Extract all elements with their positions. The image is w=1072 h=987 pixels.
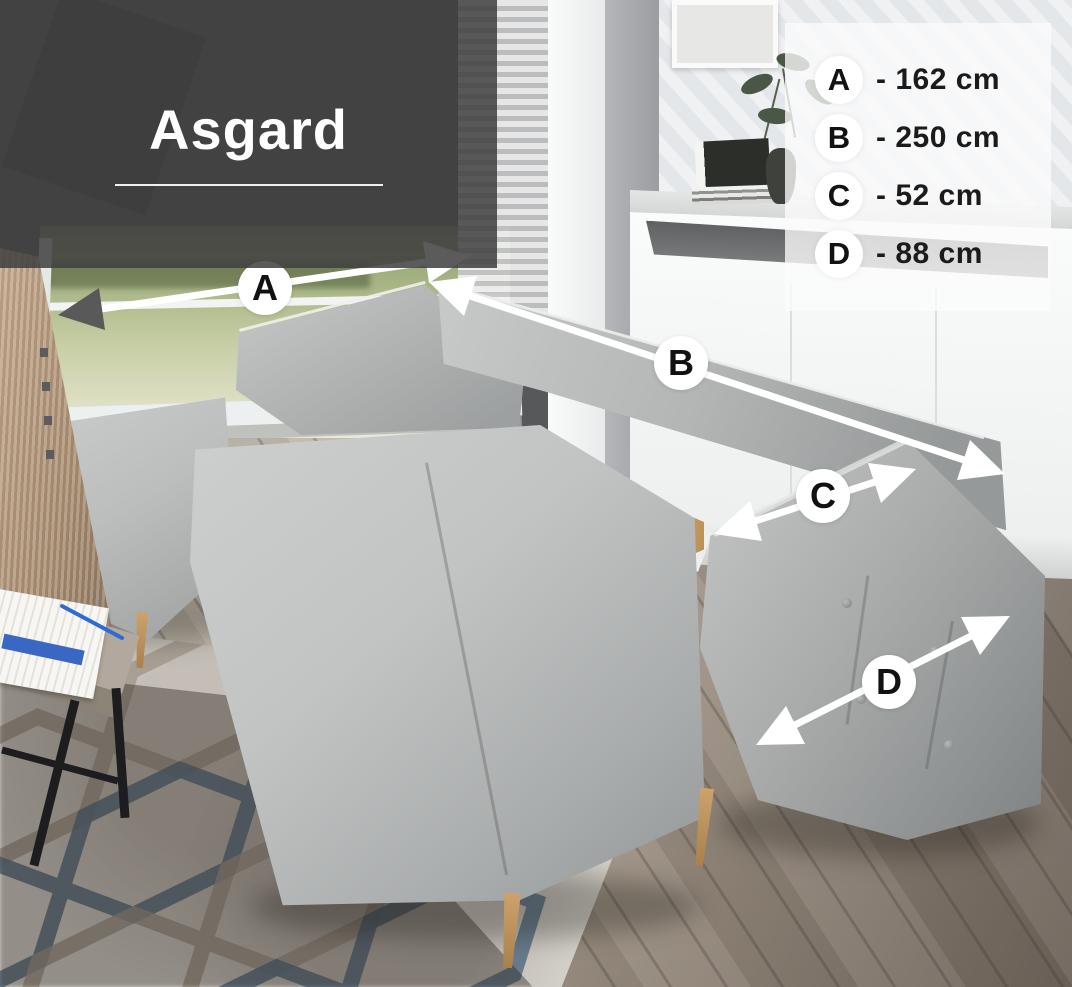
marker-a-label: A: [252, 267, 278, 309]
legend-letter-badge: B: [815, 114, 863, 162]
marker-c-label: C: [810, 475, 836, 517]
legend-row: C - 52 cm: [815, 172, 1051, 220]
tuft-button: [842, 598, 852, 608]
marker-a: A: [238, 261, 292, 315]
legend-row: D - 88 cm: [815, 230, 1051, 278]
legend-card: A - 162 cm B - 250 cm C - 52 cm D - 88 c…: [785, 23, 1051, 311]
title-card: Asgard: [0, 0, 497, 268]
tuft-button: [930, 646, 940, 656]
curtain-hook: [40, 348, 48, 357]
legend-value: - 250 cm: [876, 121, 1000, 155]
marker-d-label: D: [876, 661, 902, 703]
legend-value: - 52 cm: [876, 179, 983, 213]
tuft-button: [856, 694, 866, 704]
legend-row: B - 250 cm: [815, 114, 1051, 162]
tuft-button: [944, 740, 954, 750]
marker-d: D: [862, 655, 916, 709]
legend-letter-badge: C: [815, 172, 863, 220]
stacked-books: [692, 185, 779, 206]
legend-row: A - 162 cm: [815, 56, 1051, 104]
marker-b: B: [654, 336, 708, 390]
legend-value: - 88 cm: [876, 237, 983, 271]
marker-c: C: [796, 469, 850, 523]
curtain-hook: [46, 450, 54, 459]
page-title: Asgard: [149, 97, 348, 162]
legend-letter-badge: D: [815, 230, 863, 278]
legend-letter-badge: A: [815, 56, 863, 104]
legend-value: - 162 cm: [876, 63, 1000, 97]
curtain-hook: [44, 416, 52, 425]
marker-b-label: B: [668, 342, 694, 384]
plant-leaf: [738, 70, 776, 99]
sofa-seat-cushions: [190, 425, 705, 915]
title-underline: [115, 184, 383, 186]
curtain-hook: [42, 382, 50, 391]
product-dimension-image: A B C D Asgard A - 162 cm B - 250 cm C -…: [0, 0, 1072, 987]
